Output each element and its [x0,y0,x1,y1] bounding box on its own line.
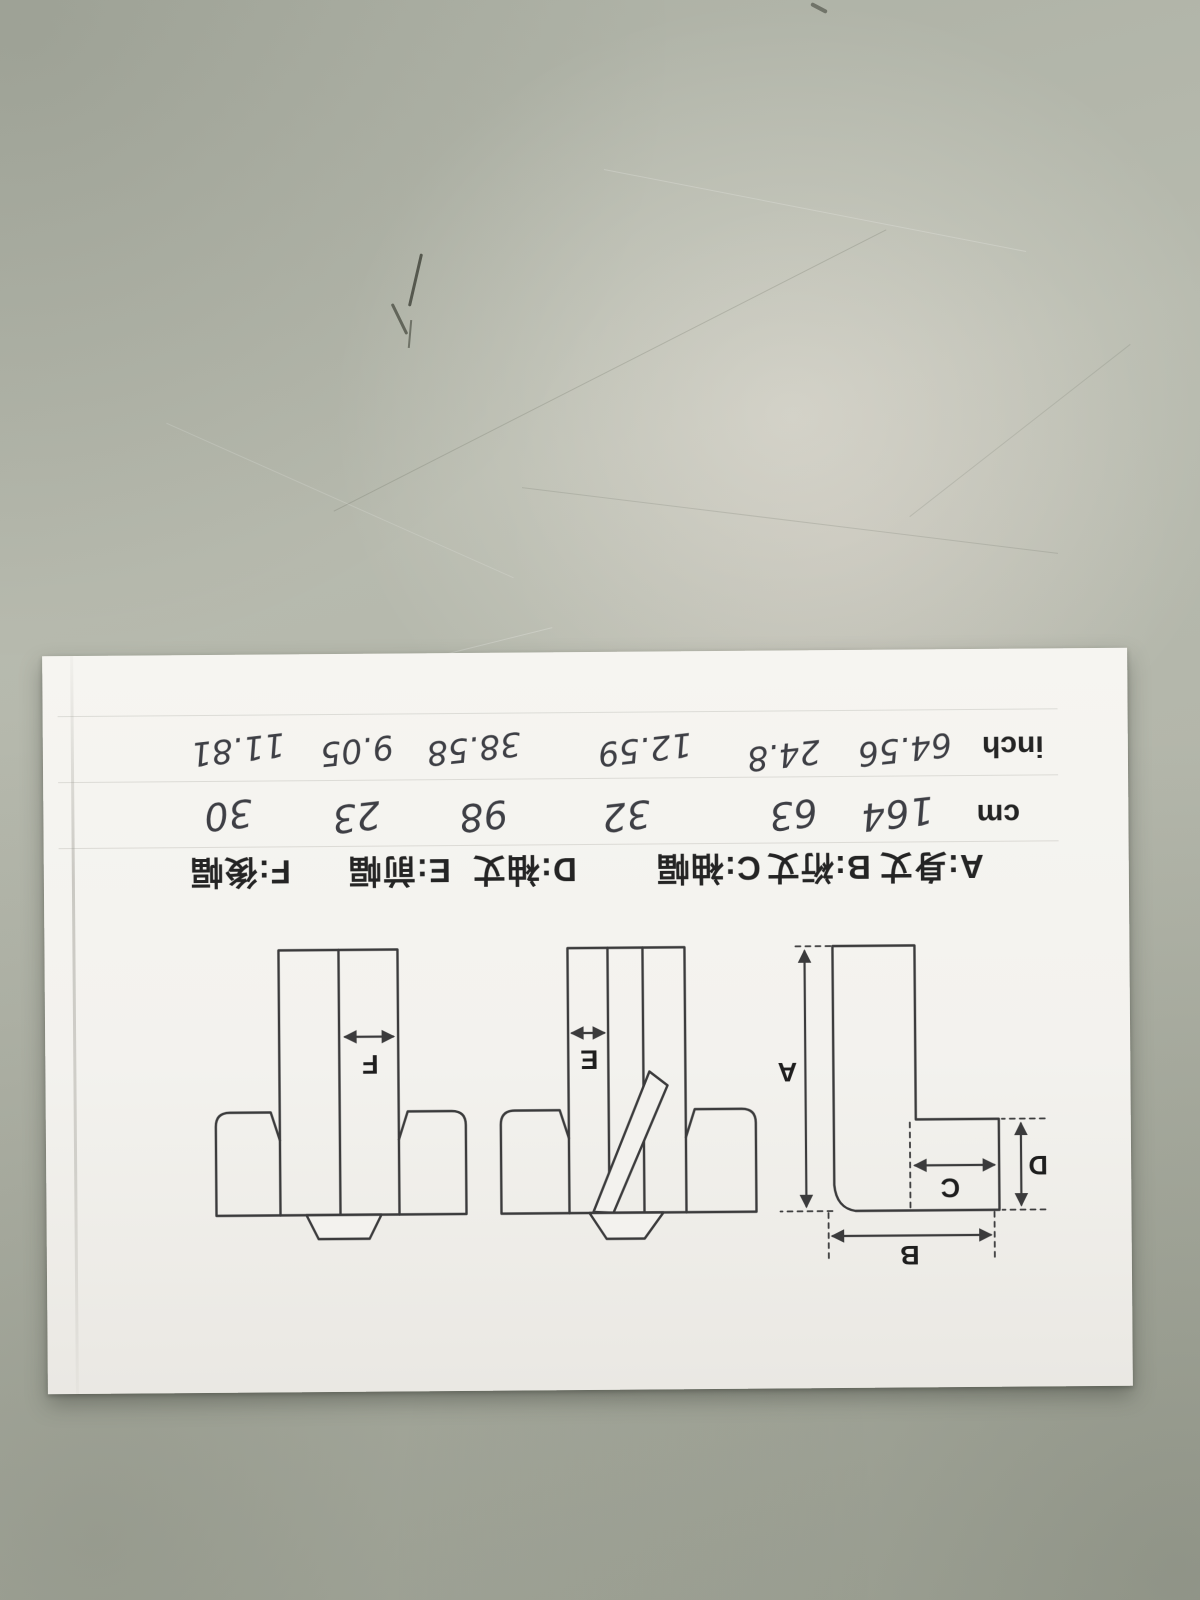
paper-sheet: A B C D E F A:身丈 B:裄丈 C:袖幅 D:袖丈 E:前幅 F:後… [42,648,1133,1394]
cm-value-f: 30 [202,790,255,839]
cm-value-e: 23 [330,792,383,841]
legend-item-a: A:身丈 [879,845,984,894]
cm-value-d: 98 [457,791,510,840]
diagram-kimono-front [499,947,756,1240]
table-scratch [408,253,423,306]
legend-item-e: E:前幅 [348,849,451,898]
legend-item-f: F:後幅 [189,850,291,899]
table-scratch [909,344,1130,517]
dim-letter-e: E [580,1043,598,1074]
inch-value-e: 9.05 [318,727,395,774]
dim-letter-d: D [1028,1149,1048,1180]
diagram-body-sleeve [778,944,1045,1258]
dim-letter-c: C [940,1172,960,1203]
table-scratch [391,303,409,335]
legend-item-c: C:袖幅 [656,847,761,896]
table-scratch [522,487,1058,554]
inch-value-b: 24.8 [745,732,822,779]
cm-value-a: 164 [859,788,936,840]
inch-row-header: inch [982,728,1044,762]
cm-row-header: cm [977,797,1021,831]
dim-letter-a: A [778,1056,798,1087]
dim-letter-f: F [362,1048,379,1079]
cm-value-c: 32 [600,791,653,840]
table-scratch [334,229,887,511]
table-scratch [408,320,412,348]
table-scratch [166,423,514,578]
table-scratch [604,169,1026,252]
legend-item-d: D:袖丈 [472,848,577,897]
table-scratch [810,2,828,14]
legend-item-b: B:裄丈 [766,846,871,895]
photo-of-measurement-sheet: { "paper": { "row_headers": { "cm": "cm"… [0,0,1200,1600]
sheet-content-upside-down: A B C D E F A:身丈 B:裄丈 C:袖幅 D:袖丈 E:前幅 F:後… [42,648,1133,1394]
cm-value-b: 63 [767,790,820,839]
dim-letter-b: B [900,1239,920,1270]
diagram-kimono-back [214,949,466,1240]
